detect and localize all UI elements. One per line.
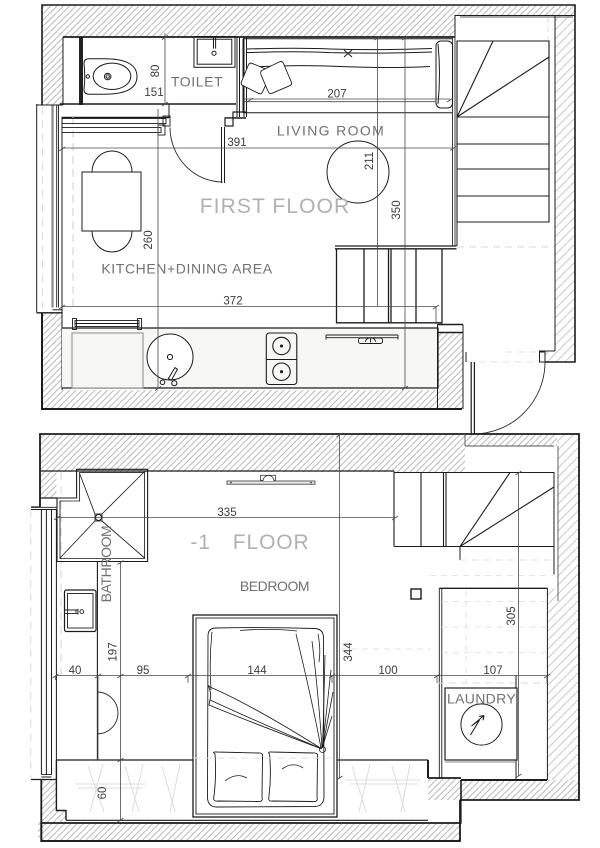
svg-text:207: 207 [327, 89, 346, 101]
svg-text:BATHROOM: BATHROOM [98, 526, 114, 603]
svg-text:144: 144 [247, 665, 267, 677]
svg-text:BEDROOM: BEDROOM [240, 578, 309, 594]
svg-text:372: 372 [223, 296, 242, 308]
svg-text:95: 95 [137, 665, 150, 677]
svg-text:305: 305 [506, 606, 518, 625]
svg-text:211: 211 [364, 152, 376, 170]
svg-text:151: 151 [144, 87, 163, 99]
svg-text:80: 80 [150, 65, 162, 78]
svg-text:TOILET: TOILET [171, 74, 223, 90]
svg-text:LAUNDRY: LAUNDRY [447, 691, 516, 707]
svg-text:KITCHEN+DINING AREA: KITCHEN+DINING AREA [101, 261, 272, 277]
svg-text:391: 391 [227, 137, 246, 149]
svg-text:FIRST FLOOR: FIRST FLOOR [200, 195, 351, 218]
svg-text:260: 260 [143, 230, 155, 249]
svg-text:107: 107 [483, 665, 502, 677]
svg-text:344: 344 [343, 642, 355, 662]
svg-text:335: 335 [217, 507, 236, 519]
svg-text:350: 350 [391, 200, 403, 219]
svg-text:197: 197 [108, 642, 120, 661]
svg-text:60: 60 [97, 787, 109, 800]
svg-text:LIVING ROOM: LIVING ROOM [277, 123, 385, 139]
svg-text:100: 100 [378, 665, 397, 677]
svg-text:40: 40 [69, 665, 82, 677]
svg-text:-1 FLOOR: -1 FLOOR [190, 531, 309, 554]
